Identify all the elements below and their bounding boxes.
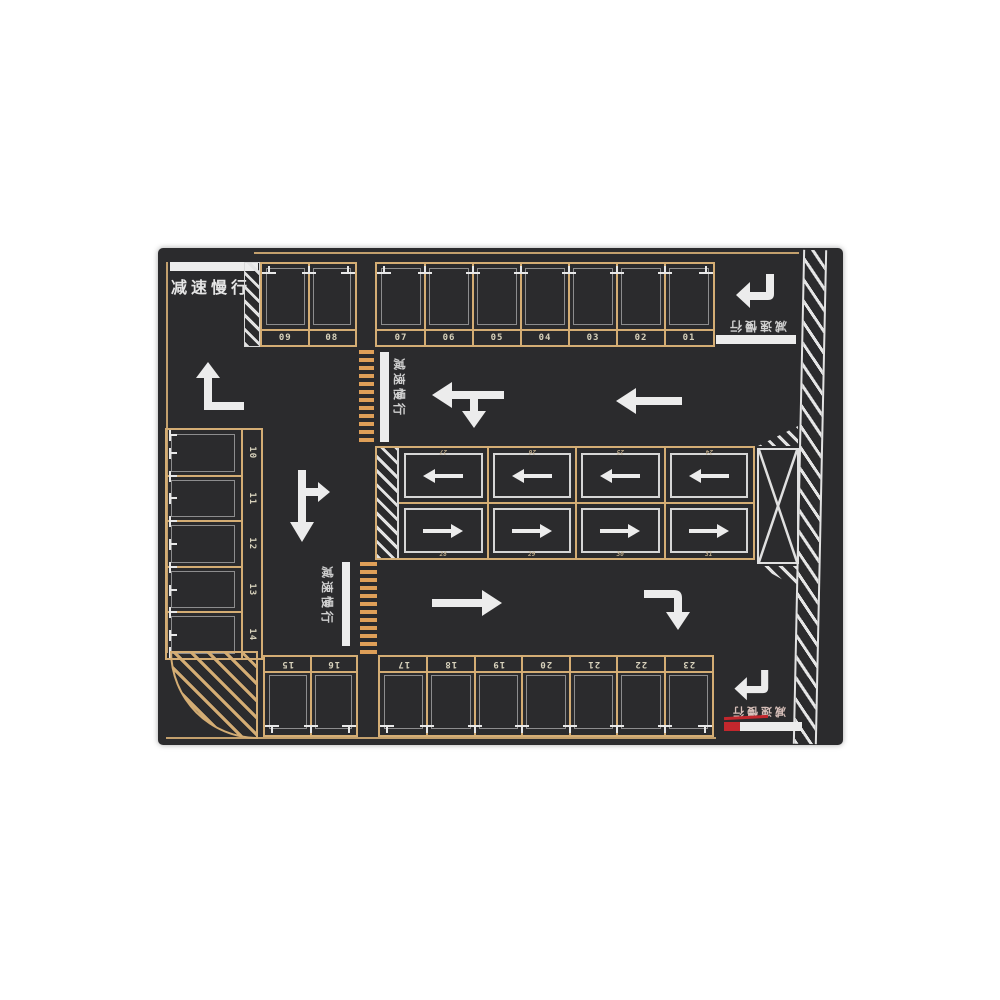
slow-down-text-top-left: 减速慢行 <box>171 274 251 298</box>
stall-divider <box>167 611 241 613</box>
stall-divider <box>616 657 618 735</box>
stall-block-left-column: 1011121314 <box>165 428 263 660</box>
stall-divider <box>487 448 489 558</box>
stall-divider <box>167 475 241 477</box>
stall-inner-box <box>621 675 660 729</box>
stall-number: 18 <box>427 657 474 671</box>
stall-inner-box <box>573 268 613 325</box>
stall-inner-box <box>381 268 421 325</box>
stall-block-top-left: 0908 <box>260 262 357 347</box>
hatch-wedge-below-x <box>758 566 798 588</box>
stall-number: 15 <box>265 657 311 671</box>
stall-inner-box <box>477 268 517 325</box>
slow-bar-lower-crosswalk <box>342 562 350 646</box>
stall-tick <box>514 272 528 274</box>
stall-tick <box>562 272 576 274</box>
stall-number: 29 <box>488 550 577 558</box>
stall-tick <box>169 430 171 441</box>
stall-divider <box>664 657 666 735</box>
slow-down-text-upper-crosswalk: 减速慢行 <box>391 358 408 418</box>
stall-number: 04 <box>521 331 569 345</box>
stall-tick <box>169 630 171 641</box>
parking-lot-plan: 减速慢行 0908 07060504030201 1011121314 1516… <box>158 248 843 745</box>
stall-inner-box <box>171 480 235 518</box>
stall-inner-box <box>479 675 518 729</box>
stall-inner-box <box>171 525 235 563</box>
stall-number: 20 <box>522 657 569 671</box>
stall-number: 25 <box>576 448 665 456</box>
corner-hatch-island <box>170 651 258 739</box>
stall-inner-box <box>429 268 469 325</box>
left-arrow <box>600 469 640 483</box>
stall-tick <box>563 725 577 727</box>
stall-inner-box <box>315 675 353 729</box>
stall-tick <box>468 725 482 727</box>
stall-divider <box>521 657 523 735</box>
stall-number: 14 <box>229 626 275 644</box>
stall-inner-box <box>525 268 565 325</box>
left-arrow <box>689 469 729 483</box>
stall-number: 08 <box>309 331 356 345</box>
stall-number: 17 <box>380 657 427 671</box>
stall-inner-box <box>384 675 423 729</box>
stall-tick <box>466 272 480 274</box>
stall-number: 27 <box>399 448 488 456</box>
stall-tick <box>610 725 624 727</box>
stall-number: 24 <box>665 448 754 456</box>
stop-bar-bottom-right <box>724 722 802 731</box>
stall-divider <box>472 264 474 345</box>
stall-number: 22 <box>617 657 664 671</box>
stall-tick <box>262 272 276 274</box>
stall-inner-box <box>171 616 235 654</box>
stall-number: 23 <box>665 657 712 671</box>
stall-number: 06 <box>425 331 473 345</box>
stall-number: 09 <box>262 331 309 345</box>
slow-bar-upper-crosswalk <box>380 352 389 442</box>
hatch-wedge-above-x <box>758 426 798 446</box>
no-parking-cross-box <box>757 448 799 564</box>
stall-tick <box>169 585 171 596</box>
stall-divider <box>474 657 476 735</box>
stall-block-bottom-main: 17181920212223 <box>378 655 714 737</box>
stall-number: 13 <box>229 581 275 599</box>
page: 减速慢行 0908 07060504030201 1011121314 1516… <box>0 0 1000 1000</box>
stop-bar-top-right <box>716 335 796 344</box>
stall-inner-box <box>669 268 709 325</box>
stall-divider <box>664 448 666 558</box>
stall-inner-box <box>171 434 235 472</box>
slow-down-text-lower-crosswalk: 减速慢行 <box>319 566 336 626</box>
stall-tick <box>699 272 713 274</box>
stall-number: 16 <box>311 657 357 671</box>
stall-number: 03 <box>569 331 617 345</box>
stall-inner-box <box>431 675 470 729</box>
stall-inner-box <box>266 268 305 325</box>
stall-tick <box>169 562 171 573</box>
stall-block-middle-double: 2726252428293031 <box>375 446 755 560</box>
stall-tick <box>342 725 356 727</box>
stall-inner-box <box>313 268 352 325</box>
right-arrow <box>600 524 640 538</box>
stall-divider <box>568 264 570 345</box>
stall-divider <box>424 264 426 345</box>
zebra-crosswalk-lower <box>360 562 377 656</box>
stall-tick <box>698 725 712 727</box>
stall-number: 12 <box>229 535 275 553</box>
stall-tick <box>380 725 394 727</box>
slow-down-text-top-right: 减速慢行 <box>718 318 796 335</box>
stall-divider <box>426 657 428 735</box>
stall-divider <box>167 566 241 568</box>
stall-divider <box>569 657 571 735</box>
right-arrow <box>423 524 463 538</box>
stall-divider <box>310 657 312 735</box>
stall-inner-box <box>269 675 307 729</box>
stall-tick <box>302 272 316 274</box>
stall-block-top-main: 07060504030201 <box>375 262 715 347</box>
right-arrow <box>512 524 552 538</box>
stall-tick <box>169 471 171 482</box>
stall-tick <box>515 725 529 727</box>
stall-block-bottom-left: 1516 <box>263 655 358 737</box>
stall-number: 07 <box>377 331 425 345</box>
stall-number: 05 <box>473 331 521 345</box>
stall-tick <box>169 516 171 527</box>
stall-divider <box>616 264 618 345</box>
stall-tick <box>265 725 279 727</box>
stall-divider <box>167 520 241 522</box>
stall-divider <box>308 264 310 345</box>
stall-number: 10 <box>229 444 275 462</box>
stall-number: 28 <box>399 550 488 558</box>
stall-inner-box <box>526 675 565 729</box>
stall-tick <box>169 607 171 618</box>
stall-number: 30 <box>576 550 665 558</box>
stall-tick <box>341 272 355 274</box>
stall-tick <box>658 725 672 727</box>
stall-number: 21 <box>570 657 617 671</box>
stall-number: 31 <box>665 550 754 558</box>
stall-tick <box>610 272 624 274</box>
stall-tick <box>658 272 672 274</box>
stall-number: 02 <box>617 331 665 345</box>
stall-number: 01 <box>665 331 713 345</box>
stall-tick <box>377 272 391 274</box>
right-arrow <box>689 524 729 538</box>
stall-inner-box <box>574 675 613 729</box>
stall-tick <box>420 725 434 727</box>
left-arrow <box>512 469 552 483</box>
stall-number: 19 <box>475 657 522 671</box>
stall-number: 26 <box>488 448 577 456</box>
stall-number: 11 <box>229 489 275 507</box>
stall-inner-box <box>669 675 708 729</box>
zebra-crosswalk-upper <box>359 350 374 446</box>
hatch-strip-top-left <box>244 262 260 347</box>
left-arrow <box>423 469 463 483</box>
stall-divider <box>520 264 522 345</box>
stall-tick <box>169 493 171 504</box>
stall-tick <box>169 539 171 550</box>
stall-inner-box <box>621 268 661 325</box>
number-strip-line <box>380 671 712 673</box>
stall-divider <box>575 448 577 558</box>
stall-tick <box>418 272 432 274</box>
hatch-strip-middle-block <box>377 448 399 558</box>
stall-divider <box>664 264 666 345</box>
top-edge-line <box>254 252 799 254</box>
stall-tick <box>169 448 171 459</box>
stall-tick <box>304 725 318 727</box>
stall-inner-box <box>171 571 235 609</box>
